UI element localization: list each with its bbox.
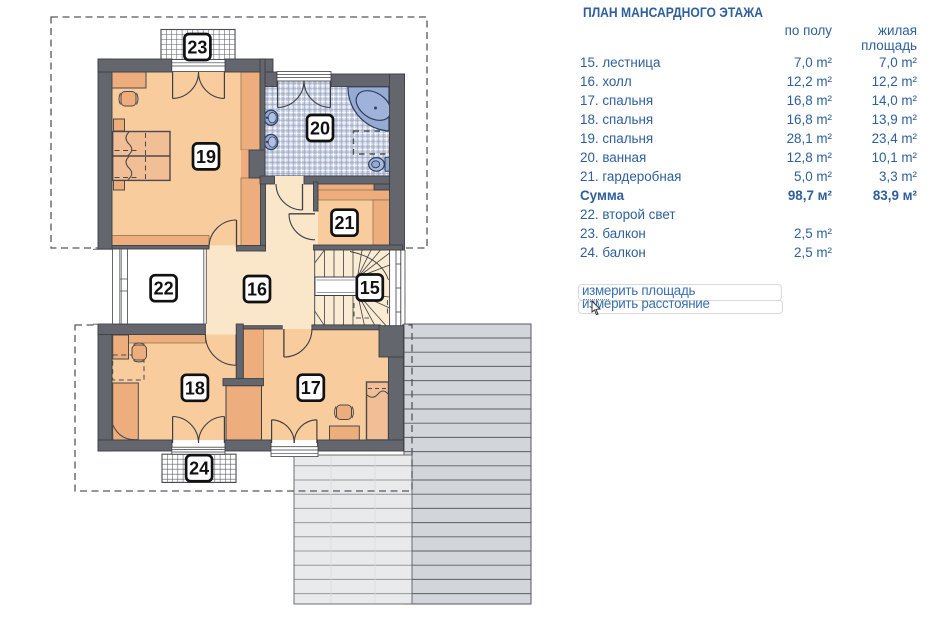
svg-text:19: 19	[196, 147, 216, 167]
svg-text:23: 23	[187, 38, 207, 58]
svg-text:22: 22	[154, 279, 174, 299]
svg-text:18: 18	[185, 378, 205, 398]
svg-text:20: 20	[310, 119, 330, 139]
svg-text:21: 21	[334, 213, 354, 233]
svg-text:16: 16	[247, 280, 267, 300]
svg-text:15: 15	[360, 278, 380, 298]
svg-text:24: 24	[189, 459, 209, 479]
svg-text:17: 17	[301, 378, 321, 398]
